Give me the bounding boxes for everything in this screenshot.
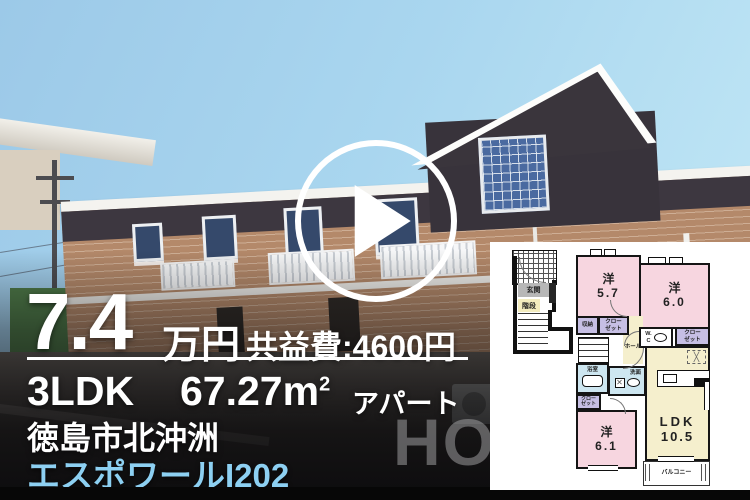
fp-room-west-6-0: 洋 6.0 xyxy=(639,263,710,329)
play-icon xyxy=(355,185,411,257)
fp-balcony-label: バルコニー xyxy=(662,470,692,477)
fp-wc-label: W.C xyxy=(645,331,651,343)
fp-room-size: 6.1 xyxy=(595,440,618,454)
fp-shoe-cabinet xyxy=(549,283,556,303)
play-button[interactable] xyxy=(295,140,457,302)
price-value: 7.4 xyxy=(26,282,131,362)
fp-wash-fixtures: ✕ xyxy=(615,378,640,388)
fp-room-label: 洋 xyxy=(602,273,614,287)
fp-window-symbol xyxy=(658,456,694,462)
fp-room-label: 洋 xyxy=(668,282,680,296)
fp-window-symbol xyxy=(648,257,666,264)
fp-entrance: 玄関 xyxy=(518,283,549,297)
floor-area-value: 67.27m xyxy=(180,368,319,414)
fp-balcony-hatch xyxy=(645,464,652,481)
floor-area-sup: 2 xyxy=(319,373,330,395)
fp-storage-label: 収納 xyxy=(582,322,593,328)
fp-balcony-hatch xyxy=(701,464,708,481)
fp-ldk-label: LDK xyxy=(660,415,696,430)
floor-area: 67.27m2 xyxy=(180,368,330,415)
fp-closet: クローゼット xyxy=(576,394,601,410)
fp-entrance-label: 玄関 xyxy=(527,285,541,295)
fp-wash-label: 洗面 xyxy=(630,370,641,376)
fp-window-symbol xyxy=(669,257,683,264)
fp-balcony: バルコニー xyxy=(643,461,710,486)
fp-wall xyxy=(548,327,573,331)
fp-toilet-bowl xyxy=(654,333,667,342)
fp-fridge-space: ╳ xyxy=(687,350,706,364)
fp-bath-label: 浴室 xyxy=(587,367,598,373)
fp-wall xyxy=(513,256,517,354)
maintenance-fee: 共益費:4600円 xyxy=(246,322,456,368)
fp-room-size: 6.0 xyxy=(663,296,686,310)
fp-room-west-5-7: 洋 5.7 xyxy=(576,255,641,318)
fp-sink-icon xyxy=(627,378,640,387)
fp-kitchen-counter xyxy=(657,370,710,387)
fp-washroom: 洗面 ✕ xyxy=(608,366,646,396)
fp-inner-stairs xyxy=(578,337,609,363)
fp-room-west-6-1: 洋 6.1 xyxy=(576,410,637,469)
fp-window-symbol xyxy=(590,249,602,256)
layout-type: 3LDK xyxy=(27,368,134,415)
fp-door-arc xyxy=(610,398,626,414)
fp-stairs xyxy=(518,313,548,349)
fp-wall xyxy=(513,350,573,354)
fp-closet-label: クローゼット xyxy=(684,330,701,342)
fp-storage: 収納 xyxy=(576,316,599,335)
fp-stairs-label: 階段 xyxy=(522,301,536,311)
fp-ldk-size: 10.5 xyxy=(661,430,694,445)
fp-kitchen-sink xyxy=(663,374,677,383)
fp-closet-label: クローゼット xyxy=(581,397,596,408)
fp-wall xyxy=(569,327,573,354)
fp-toilet: W.C xyxy=(639,327,673,348)
fp-bathtub xyxy=(582,375,603,387)
fp-window-symbol xyxy=(588,465,618,471)
fp-closet: クローゼット xyxy=(675,327,710,346)
fp-room-label: 洋 xyxy=(600,426,612,440)
divider-line xyxy=(27,357,468,360)
fp-room-size: 5.7 xyxy=(597,287,620,301)
fp-wall xyxy=(548,310,552,327)
listing-thumbnail: HO 7.4 万円 共益費:4600円 3LDK 67.27m2 アパート 徳島… xyxy=(0,0,750,500)
floorplan-panel: 玄関 階段 洋 5.7 洋 6.0 収納 クローゼット W.C クローゼット ホ… xyxy=(490,242,750,490)
fp-window-symbol xyxy=(604,249,616,256)
fp-closet: クローゼット xyxy=(598,316,629,335)
fp-washer-icon: ✕ xyxy=(615,378,625,388)
fp-stairs-label-box: 階段 xyxy=(518,299,540,312)
price-unit: 万円 xyxy=(162,314,240,370)
fp-window-symbol xyxy=(704,382,710,410)
fp-bathroom: 浴室 xyxy=(576,363,609,394)
building-type: アパート xyxy=(352,382,459,421)
fp-closet-label: クローゼット xyxy=(605,319,622,331)
